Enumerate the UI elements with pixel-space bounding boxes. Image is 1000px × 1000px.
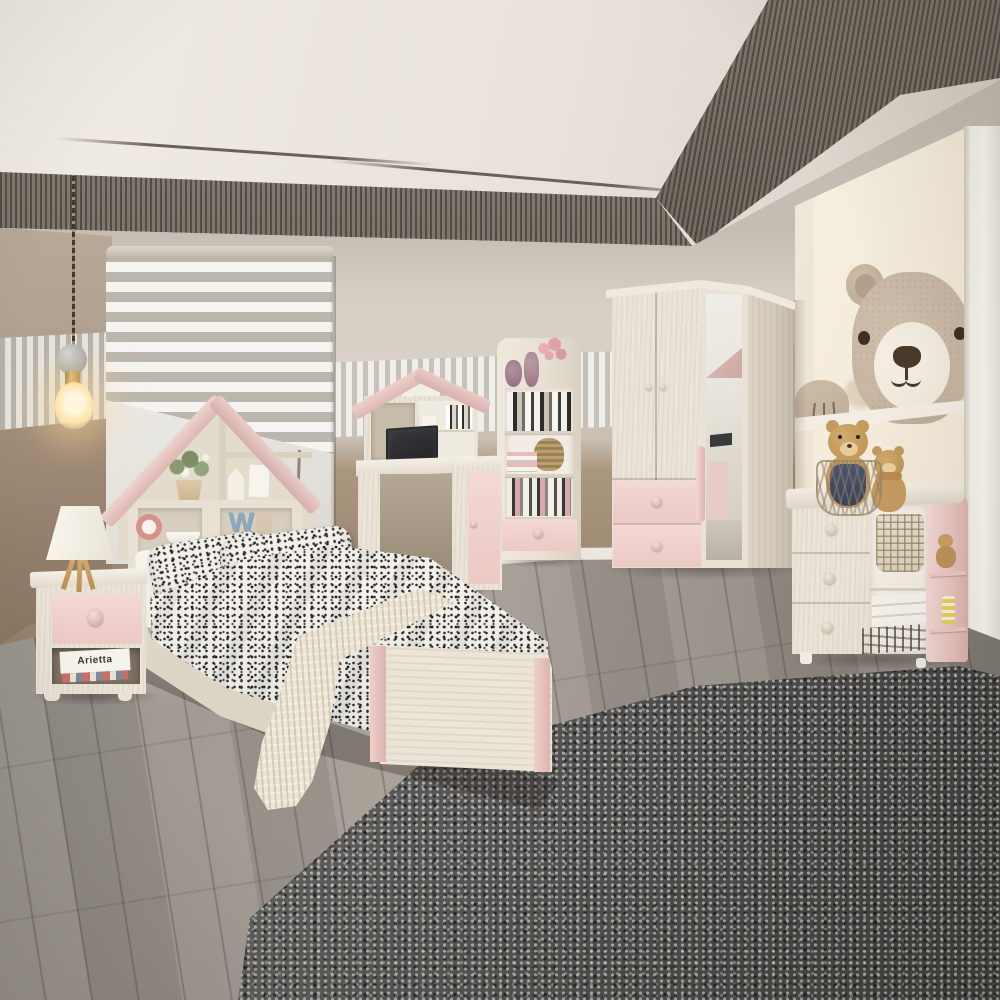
wardrobe-door-seam bbox=[655, 292, 657, 480]
mirror-reflection-roof bbox=[706, 348, 742, 378]
bear-eye-left bbox=[858, 331, 870, 345]
blind-roller bbox=[106, 246, 334, 261]
nightstand-knob[interactable] bbox=[88, 609, 103, 626]
bookshelf-flowers bbox=[533, 336, 569, 364]
dresser-knob-1[interactable] bbox=[826, 524, 837, 535]
bear-blush-left bbox=[845, 377, 878, 408]
dresser-knob-3[interactable] bbox=[822, 622, 833, 633]
teddy-large-eye-right bbox=[856, 435, 860, 439]
teddy-large-nose bbox=[847, 444, 852, 448]
mirror-reflection-floor bbox=[706, 520, 742, 560]
wardrobe-drawer-knob-2[interactable] bbox=[652, 541, 662, 551]
wall-pilaster bbox=[964, 126, 1000, 658]
side-shelf-teddy-body bbox=[936, 546, 956, 568]
scene-photo: W Arietta bbox=[0, 0, 1000, 1000]
teddy-wire-basket bbox=[816, 460, 882, 516]
footboard-trim-left bbox=[370, 646, 386, 762]
bookshelf-vase-1 bbox=[505, 360, 522, 387]
nightstand-foot-left bbox=[44, 692, 60, 701]
dresser-foot-right bbox=[916, 658, 926, 668]
wardrobe-door-knob-right[interactable] bbox=[660, 384, 666, 390]
bookshelf-drawer-knob[interactable] bbox=[534, 529, 543, 538]
desk-hutch-books bbox=[446, 405, 472, 429]
dresser-box-stack bbox=[872, 592, 930, 626]
pendant-cord bbox=[72, 176, 75, 348]
wardrobe-handle[interactable] bbox=[696, 446, 705, 522]
bookshelf-basket bbox=[534, 438, 564, 471]
pendant-bulb bbox=[55, 382, 93, 429]
bookshelf-book-stack bbox=[507, 452, 537, 472]
bear-nose bbox=[893, 346, 921, 368]
bear-mouth-right bbox=[905, 372, 921, 387]
teddy-large-eye-left bbox=[838, 435, 842, 439]
dresser-wire-basket bbox=[876, 514, 924, 572]
dresser-shelf-line bbox=[870, 588, 928, 591]
headboard-clock bbox=[136, 514, 162, 540]
desk-cabinet-knob[interactable] bbox=[471, 521, 477, 527]
window-frame-shade bbox=[330, 256, 336, 564]
wardrobe-drawer-knob-1[interactable] bbox=[652, 497, 662, 507]
books-row-top bbox=[507, 392, 571, 431]
books-row-bottom bbox=[507, 478, 571, 516]
dresser-drawer-sep-2 bbox=[792, 602, 870, 604]
dresser-wire-rack bbox=[862, 624, 930, 655]
dresser-drawer-sep-1 bbox=[792, 552, 870, 554]
desk-cabinet-door[interactable] bbox=[468, 472, 500, 584]
dresser-foot-left bbox=[800, 652, 812, 664]
wardrobe-mirror bbox=[706, 294, 742, 560]
dresser-knob-2[interactable] bbox=[824, 573, 835, 584]
bookshelf-shelf-2 bbox=[505, 474, 573, 477]
wardrobe-side-panel bbox=[746, 284, 793, 568]
bookshelf-shelf-1 bbox=[505, 431, 573, 434]
nightstand-foot-right bbox=[118, 692, 132, 701]
wardrobe-door-gap bbox=[612, 478, 701, 480]
side-shelf-vase bbox=[942, 596, 955, 624]
footboard-trim-right bbox=[534, 658, 550, 772]
mirror-reflection-laptop bbox=[710, 433, 732, 447]
wardrobe-door-knob-left[interactable] bbox=[646, 384, 652, 390]
